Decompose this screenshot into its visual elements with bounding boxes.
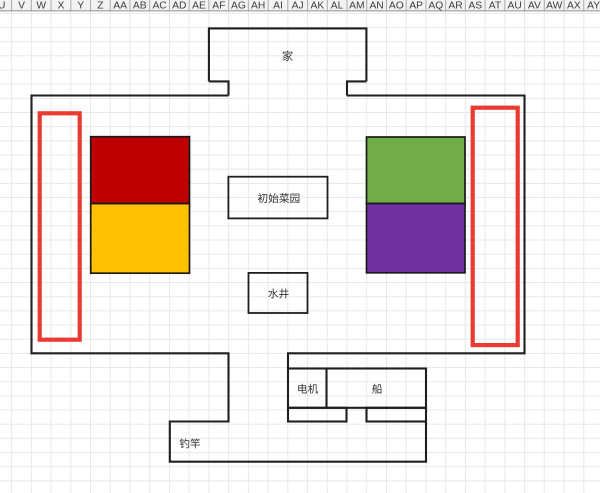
svg-text:AH: AH [251,1,265,12]
svg-text:AS: AS [468,1,482,12]
svg-text:AT: AT [489,1,502,12]
svg-text:AF: AF [212,1,225,12]
svg-text:AW: AW [546,1,562,12]
svg-text:AM: AM [349,1,364,12]
svg-text:AN: AN [369,1,383,12]
svg-text:AK: AK [311,1,325,12]
svg-text:AQ: AQ [428,1,443,12]
svg-text:AB: AB [133,1,147,12]
svg-text:X: X [57,1,64,12]
svg-text:AO: AO [389,1,404,12]
svg-text:V: V [18,1,25,12]
svg-text:AR: AR [448,1,462,12]
svg-text:AL: AL [331,1,344,12]
svg-text:AJ: AJ [292,1,304,12]
svg-text:AY: AY [587,1,600,12]
svg-text:U: U [0,1,5,12]
svg-text:AX: AX [567,1,581,12]
svg-text:AV: AV [528,1,541,12]
svg-text:AA: AA [113,1,127,12]
svg-text:AC: AC [152,1,167,12]
svg-text:AG: AG [231,1,246,12]
svg-text:AP: AP [409,1,423,12]
svg-text:AD: AD [172,1,186,12]
svg-text:Y: Y [77,1,84,12]
svg-text:AU: AU [508,1,522,12]
svg-text:W: W [36,1,46,12]
svg-text:Z: Z [97,1,103,12]
svg-text:AI: AI [273,1,283,12]
svg-text:AE: AE [192,1,206,12]
